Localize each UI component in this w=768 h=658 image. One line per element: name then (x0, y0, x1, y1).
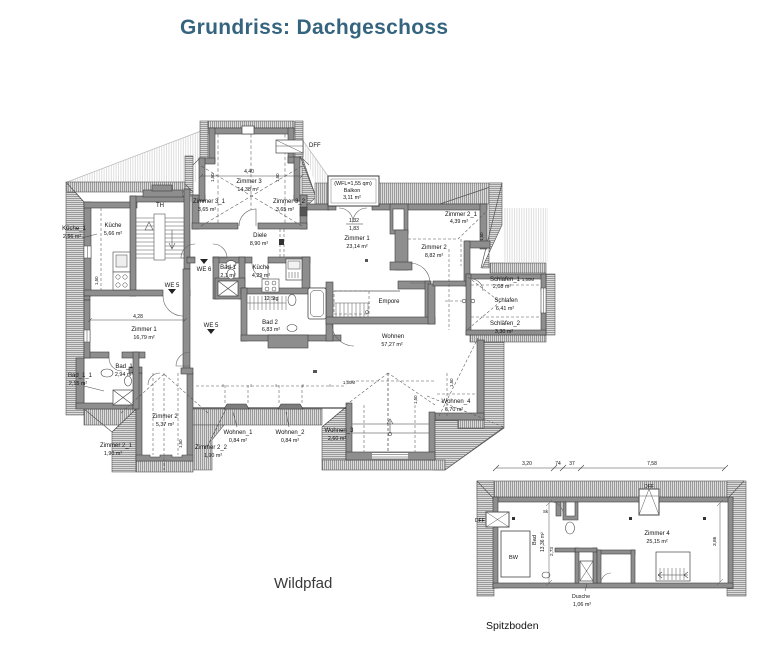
svg-text:12 Stg: 12 Stg (264, 296, 279, 302)
svg-text:6,41 m²: 6,41 m² (496, 306, 514, 312)
svg-text:1,50M: 1,50M (522, 277, 535, 282)
svg-text:1,50M: 1,50M (343, 380, 356, 385)
svg-text:Zimmer 3: Zimmer 3 (236, 179, 262, 185)
svg-text:DFF: DFF (309, 143, 321, 149)
svg-text:(WFL=1,55 qm): (WFL=1,55 qm) (334, 181, 372, 187)
svg-text:Spitzboden: Spitzboden (486, 620, 539, 632)
svg-text:6,70 m²: 6,70 m² (445, 407, 463, 413)
svg-text:Bad_1_1: Bad_1_1 (68, 373, 93, 379)
svg-text:1,83: 1,83 (349, 226, 359, 232)
svg-text:25,15 m²: 25,15 m² (646, 539, 667, 545)
svg-text:Zimmer 1: Zimmer 1 (344, 236, 370, 242)
svg-text:2,73: 2,73 (549, 547, 554, 556)
svg-text:WE 5: WE 5 (204, 323, 219, 329)
svg-text:2,94 m²: 2,94 m² (115, 372, 133, 378)
svg-text:Zimmer 2_1: Zimmer 2_1 (100, 443, 133, 449)
svg-text:1,90 m²: 1,90 m² (204, 453, 222, 459)
svg-text:0,84 m²: 0,84 m² (281, 438, 299, 444)
svg-text:Empore: Empore (378, 299, 400, 305)
svg-text:Wohnen_2: Wohnen_2 (276, 430, 306, 436)
svg-text:7,58: 7,58 (647, 461, 657, 467)
svg-text:Schläfen_2: Schläfen_2 (490, 321, 521, 327)
svg-text:1,50: 1,50 (94, 276, 99, 285)
svg-text:2,1 m²: 2,1 m² (220, 273, 235, 279)
svg-text:1,50: 1,50 (413, 395, 418, 404)
svg-text:Zimmer 4: Zimmer 4 (644, 531, 670, 537)
svg-text:4,40: 4,40 (244, 169, 254, 175)
svg-text:DFF: DFF (475, 518, 485, 524)
svg-text:Balkon: Balkon (344, 188, 360, 194)
svg-text:Wohnen: Wohnen (382, 334, 404, 340)
svg-text:13,36 m²: 13,36 m² (540, 532, 546, 552)
svg-text:57,27 m²: 57,27 m² (381, 342, 402, 348)
svg-text:8,82 m²: 8,82 m² (425, 253, 443, 259)
svg-text:1,50: 1,50 (449, 378, 454, 387)
svg-text:BW: BW (509, 555, 519, 561)
svg-text:14,38 m²: 14,38 m² (237, 187, 258, 193)
svg-text:Zimmer 3_2: Zimmer 3_2 (273, 199, 306, 205)
svg-text:4,29 m²: 4,29 m² (252, 273, 270, 279)
svg-text:Dusche: Dusche (572, 594, 590, 600)
svg-text:Wohnen_4: Wohnen_4 (442, 399, 472, 405)
svg-text:Zimmer 2_2: Zimmer 2_2 (195, 445, 228, 451)
svg-text:Wohnen_3: Wohnen_3 (325, 428, 355, 434)
svg-text:74: 74 (555, 461, 561, 467)
svg-text:Wohnen_1: Wohnen_1 (224, 430, 254, 436)
svg-text:Zimmer 2_1: Zimmer 2_1 (445, 212, 478, 218)
svg-text:3,65 m²: 3,65 m² (276, 207, 294, 213)
svg-text:Küche_1: Küche_1 (62, 226, 86, 232)
svg-text:WE 6: WE 6 (197, 267, 212, 273)
svg-text:Zimmer 2: Zimmer 2 (152, 414, 178, 420)
svg-text:Schlafen_1: Schlafen_1 (490, 277, 521, 283)
svg-text:3,30 m²: 3,30 m² (495, 329, 513, 335)
svg-text:Bad 1: Bad 1 (220, 265, 236, 271)
svg-text:2,08 m²: 2,08 m² (493, 284, 511, 290)
svg-text:3,86: 3,86 (712, 536, 718, 546)
svg-text:1,50: 1,50 (210, 173, 215, 182)
svg-text:Diele: Diele (253, 233, 267, 239)
svg-text:Sk: Sk (543, 509, 549, 514)
svg-text:Bad_1: Bad_1 (115, 364, 133, 370)
svg-text:8,90 m²: 8,90 m² (250, 241, 268, 247)
svg-text:Küche: Küche (252, 265, 270, 271)
svg-text:5,66 m²: 5,66 m² (104, 231, 122, 237)
svg-text:Bad 2: Bad 2 (262, 320, 278, 326)
svg-text:3,65 m²: 3,65 m² (198, 207, 216, 213)
svg-text:Zimmer 1: Zimmer 1 (131, 327, 157, 333)
svg-text:6,83 m²: 6,83 m² (262, 327, 280, 333)
svg-text:5,37 m²: 5,37 m² (156, 422, 174, 428)
svg-text:TH: TH (156, 203, 164, 209)
svg-text:1,32: 1,32 (349, 218, 359, 224)
svg-text:Zimmer 3_1: Zimmer 3_1 (193, 199, 226, 205)
svg-text:0,84 m²: 0,84 m² (229, 438, 247, 444)
svg-text:37: 37 (569, 461, 575, 467)
svg-text:DFF: DFF (644, 484, 654, 490)
svg-text:3,11 m²: 3,11 m² (343, 195, 361, 201)
svg-text:Bad: Bad (532, 535, 538, 545)
svg-text:4,39 m²: 4,39 m² (450, 219, 468, 225)
svg-text:2,60 m²: 2,60 m² (328, 436, 346, 442)
svg-text:16,79 m²: 16,79 m² (133, 335, 154, 341)
svg-text:4,28: 4,28 (133, 314, 143, 320)
svg-text:1,50: 1,50 (479, 232, 484, 241)
svg-text:3,20: 3,20 (522, 461, 532, 467)
svg-text:Küche: Küche (104, 223, 122, 229)
svg-text:1,90 m²: 1,90 m² (104, 451, 122, 457)
svg-text:Zimmer 2: Zimmer 2 (421, 245, 447, 251)
svg-text:23,14 m²: 23,14 m² (346, 244, 367, 250)
svg-text:2,56 m²: 2,56 m² (63, 234, 81, 240)
svg-text:Schlafen: Schlafen (494, 298, 517, 304)
svg-text:1,06 m²: 1,06 m² (573, 602, 591, 608)
svg-text:WE 5: WE 5 (165, 283, 180, 289)
svg-text:1,50: 1,50 (178, 439, 183, 448)
svg-text:1,50: 1,50 (275, 173, 280, 182)
